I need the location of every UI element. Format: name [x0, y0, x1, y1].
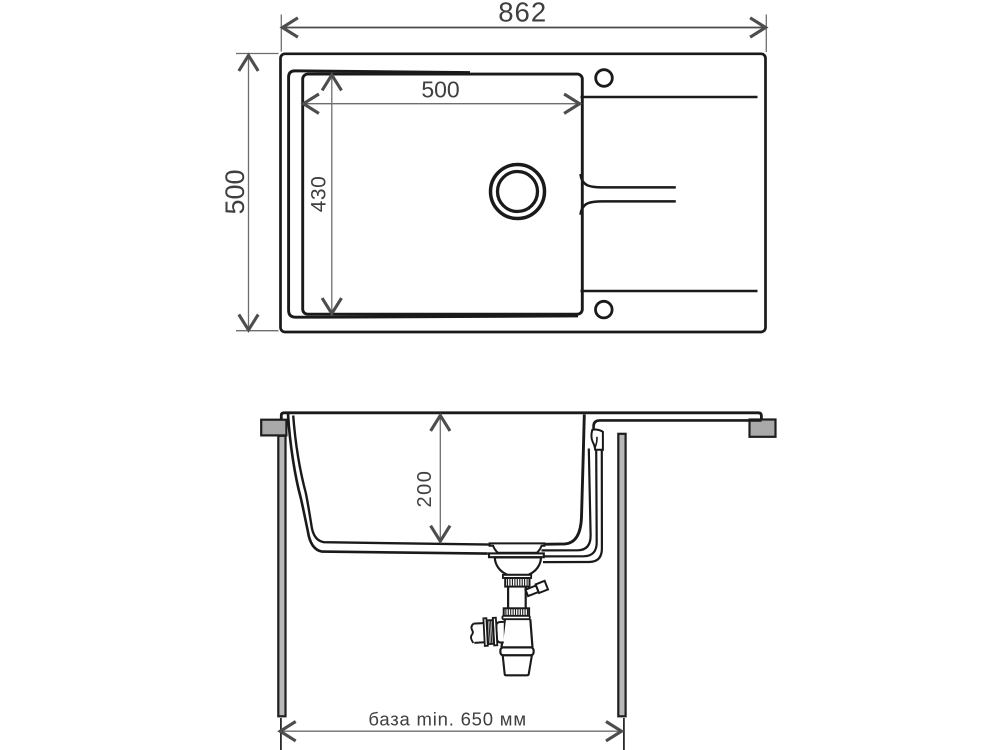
svg-text:862: 862 — [498, 0, 547, 27]
svg-text:500: 500 — [220, 169, 250, 214]
svg-text:430: 430 — [307, 176, 330, 213]
svg-text:база min. 650 мм: база min. 650 мм — [368, 708, 527, 729]
svg-text:200: 200 — [414, 470, 436, 508]
svg-text:500: 500 — [421, 76, 459, 102]
